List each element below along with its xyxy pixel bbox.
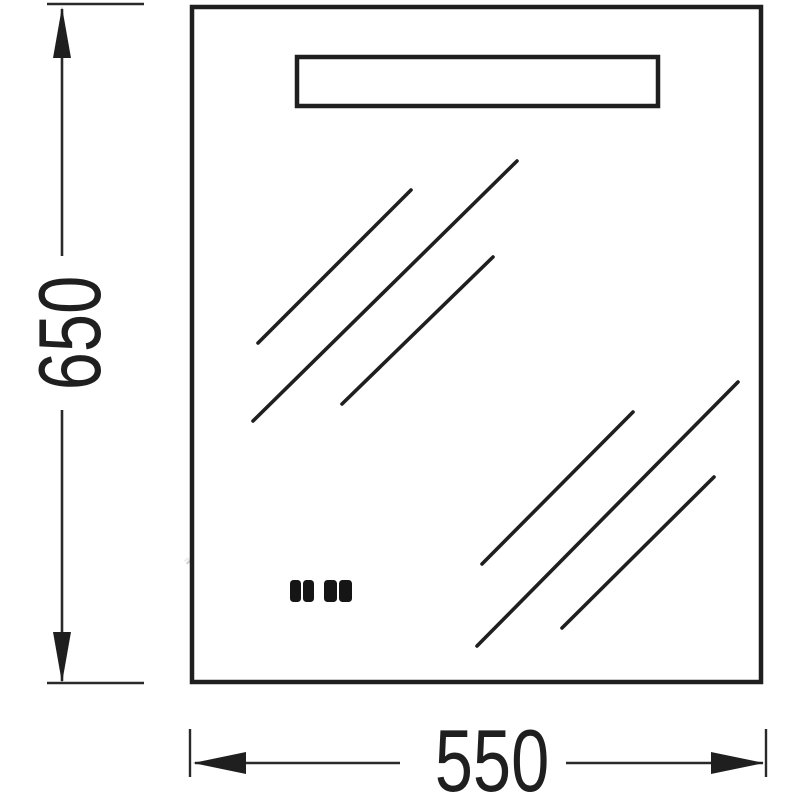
sensor-button (324, 580, 337, 602)
height-dimension: 650 (21, 4, 144, 683)
sensor-button (303, 580, 314, 602)
width-dimension-label: 550 (435, 712, 550, 800)
led-light-panel (297, 57, 658, 106)
width-dimension: 550 (190, 712, 766, 800)
diagram-canvas: www.aquamir.ru www.aquamir.ru www.aquami… (0, 0, 800, 800)
arrow-up-icon (53, 7, 71, 58)
arrow-down-icon (53, 632, 71, 683)
arrow-left-icon (193, 752, 246, 774)
sensor-button (290, 580, 301, 602)
sensor-button (339, 580, 352, 602)
arrow-right-icon (711, 752, 764, 774)
height-dimension-label: 650 (21, 276, 119, 391)
mirror-dimension-diagram: www.aquamir.ru www.aquamir.ru www.aquami… (0, 0, 800, 800)
